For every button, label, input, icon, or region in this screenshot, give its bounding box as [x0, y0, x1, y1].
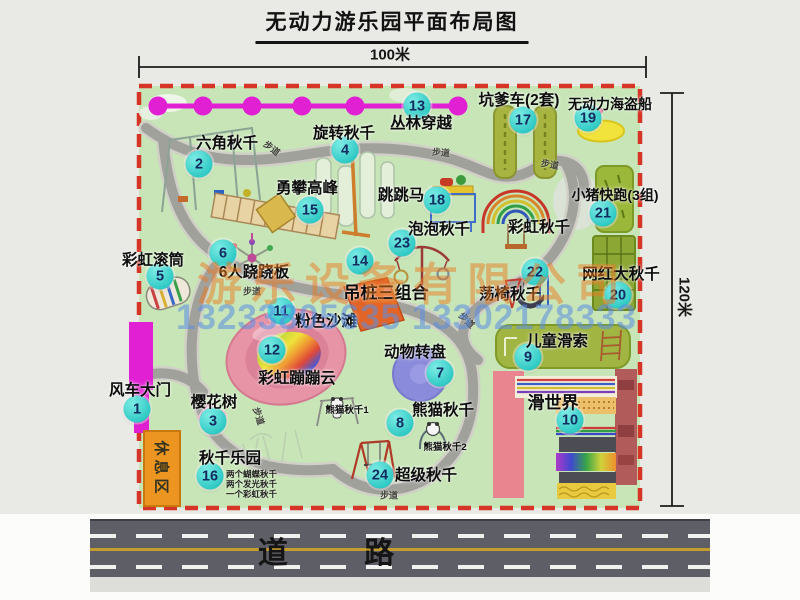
label-jungle-crossing: 丛林穿越: [390, 111, 452, 133]
label-roller-drum: 彩虹滚筒: [122, 248, 184, 270]
label-bounce-cloud: 彩虹蹦蹦云: [258, 366, 336, 388]
label-hex-swing: 六角秋千: [196, 131, 258, 153]
label-bubble-swing: 泡泡秋千: [408, 217, 470, 239]
marker-12: 12: [259, 337, 286, 364]
rest-area-label: 休息区: [152, 440, 173, 497]
label-sakura-tree: 樱花树: [191, 390, 238, 412]
marker-24: 24: [367, 462, 394, 489]
label-kart-track: 坑爹车(2套): [479, 88, 560, 110]
marker-8: 8: [387, 410, 414, 437]
label-pirate-ship: 无动力海盗船: [568, 94, 652, 114]
footpath-label-2: 步道: [431, 145, 450, 160]
label-slide-world: 滑世界: [528, 389, 579, 414]
swing-note-3: 一个彩虹秋千: [226, 489, 277, 499]
rest-area-box: 休息区: [143, 430, 181, 507]
width-dimension-label: 100米: [370, 44, 410, 65]
label-panda-swing-2: 熊猫秋千2: [423, 439, 466, 453]
label-jump-horse: 跳跳马: [378, 183, 425, 205]
road-band: 道 路: [0, 514, 800, 600]
road: 道 路: [90, 519, 710, 581]
height-dimension-label: 120米: [675, 277, 696, 317]
label-panda-swing: 熊猫秋千: [412, 398, 474, 420]
label-rainbow-swing: 彩虹秋千: [508, 215, 570, 237]
marker-2: 2: [186, 151, 213, 178]
footpath-label-6: 步道: [380, 489, 398, 502]
label-piggy-run: 小猪快跑(3组): [571, 185, 658, 205]
road-label: 道 路: [248, 528, 428, 572]
label-rotate-swing: 旋转秋千: [313, 121, 375, 143]
park-plan-page: 无动力游乐园平面布局图 100米 120米 休息区 风车大门 六角秋千 樱花树 …: [0, 0, 800, 600]
label-climb-peak: 勇攀高峰: [276, 176, 338, 198]
label-swing-park: 秋千乐园: [199, 446, 261, 468]
label-panda-swing-1: 熊猫秋千1: [325, 402, 368, 416]
page-title: 无动力游乐园平面布局图: [256, 6, 529, 44]
label-windmill-gate: 风车大门: [109, 378, 171, 400]
watermark-phone: 13233805635 13302178333: [176, 298, 637, 338]
swing-park-notes: 两个蝴蝶秋千 两个发光秋千 一个彩虹秋千: [226, 469, 277, 499]
marker-18: 18: [424, 187, 451, 214]
marker-17: 17: [510, 107, 537, 134]
marker-15: 15: [297, 197, 324, 224]
swing-note-2: 两个发光秋千: [226, 479, 277, 489]
label-super-swing: 超级秋千: [395, 463, 457, 485]
label-carousel: 动物转盘: [384, 340, 446, 362]
marker-7: 7: [427, 360, 454, 387]
swing-note-1: 两个蝴蝶秋千: [226, 469, 277, 479]
road-shoulder: [90, 577, 710, 592]
